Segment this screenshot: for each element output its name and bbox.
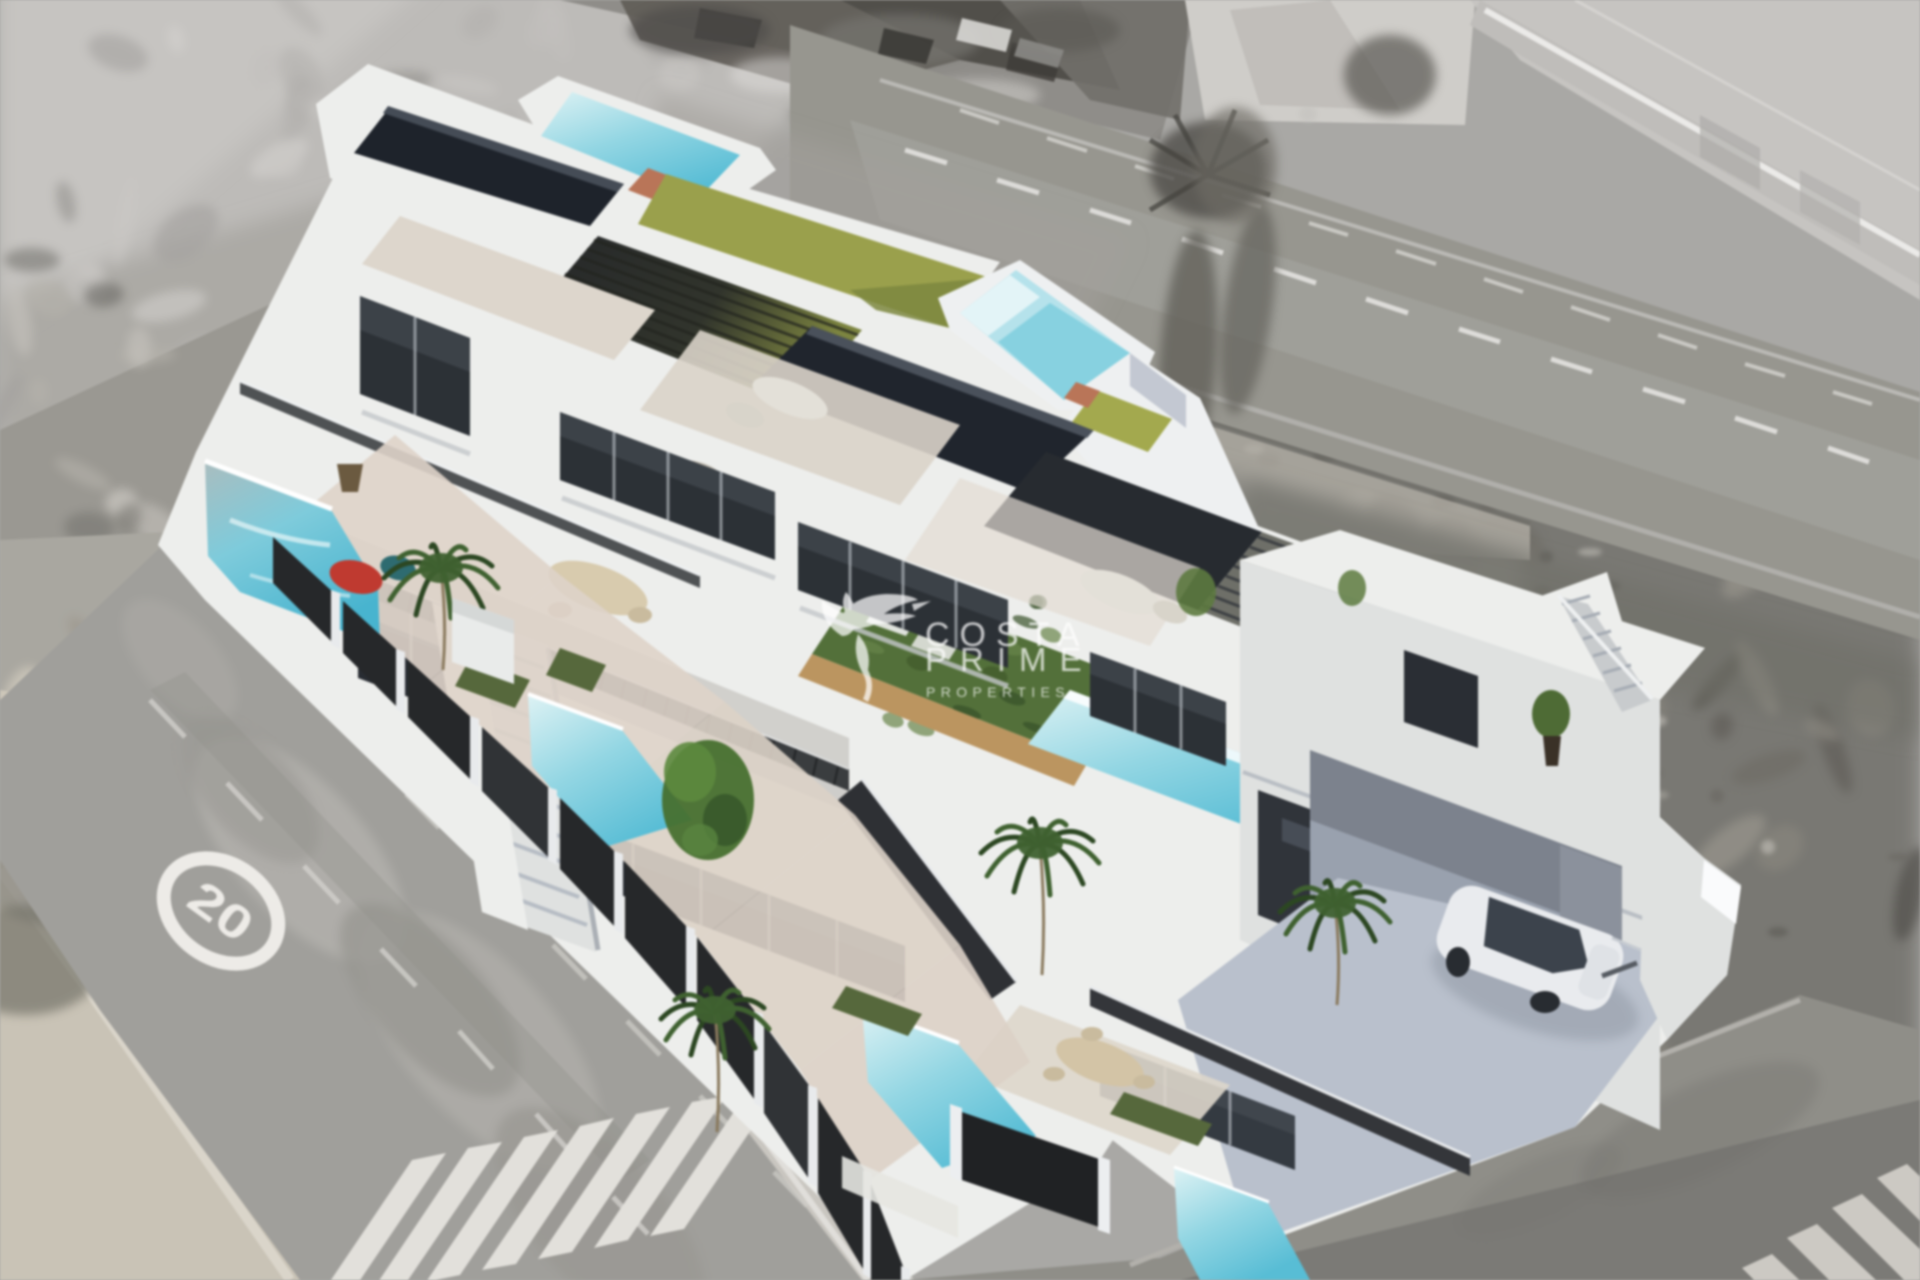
svg-text:PRIME: PRIME	[925, 641, 1095, 678]
svg-text:PROPERTIES: PROPERTIES	[926, 684, 1070, 700]
